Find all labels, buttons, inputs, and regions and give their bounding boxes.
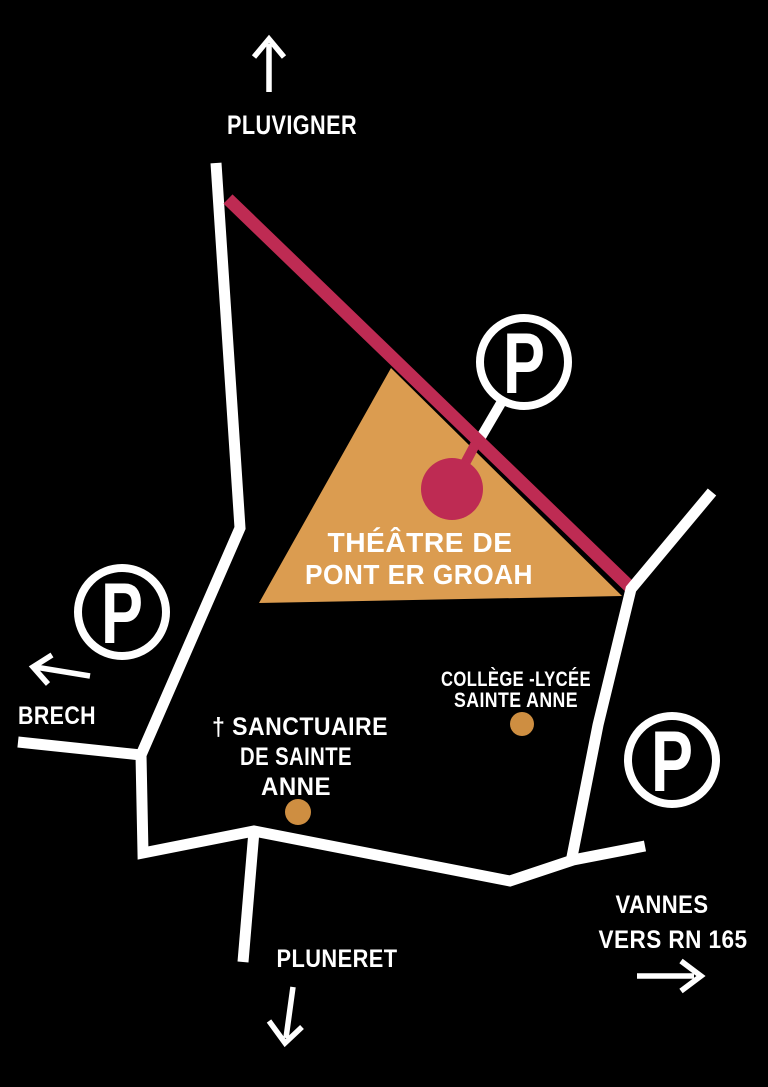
parking-letter: P — [503, 316, 545, 412]
label-sanctuaire-line1: † SANCTUAIRE — [212, 713, 388, 741]
label-college-line2: SAINTE ANNE — [454, 689, 578, 712]
parking-letter: P — [651, 714, 693, 810]
poi-dot-college — [510, 712, 534, 736]
label-college-line1: COLLÈGE -LYCÉE — [441, 668, 591, 691]
label-vannes-line1: VANNES — [616, 891, 709, 919]
theatre-marker-dot — [421, 458, 483, 520]
label-sanctuaire-line2: DE SAINTE — [240, 743, 352, 771]
label-brech: BRECH — [18, 702, 96, 730]
label-theatre-line2: PONT ER GROAH — [305, 559, 533, 590]
parking-letter: P — [101, 566, 143, 662]
access-map: P P P PLUVIGNER BRECH PLUNERET VANNES VE… — [0, 0, 768, 1087]
map-canvas: P P P PLUVIGNER BRECH PLUNERET VANNES VE… — [0, 0, 768, 1087]
label-pluneret: PLUNERET — [277, 945, 398, 973]
poi-dot-sanctuaire — [285, 799, 311, 825]
label-pluvigner: PLUVIGNER — [227, 110, 357, 140]
label-theatre-line1: THÉÂTRE DE — [328, 527, 513, 558]
label-sanctuaire-line3: ANNE — [261, 773, 331, 801]
label-vannes-line2: VERS RN 165 — [599, 926, 748, 954]
